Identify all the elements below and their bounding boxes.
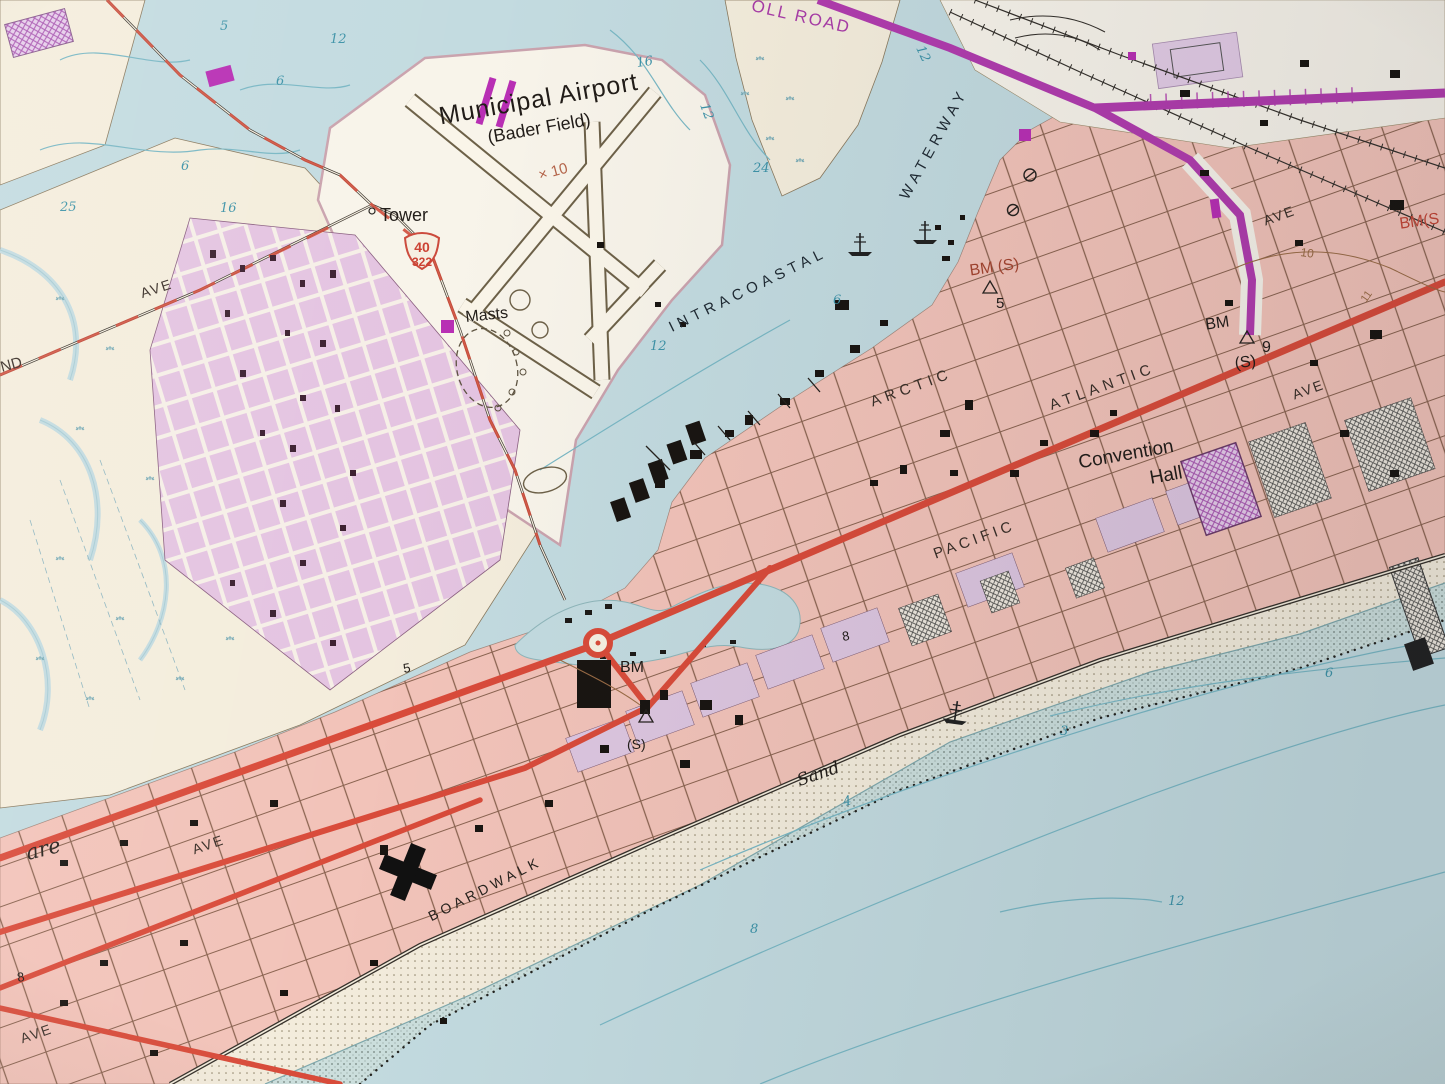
topo-map: Municipal Airport (Bader Field) Tower Ma… bbox=[0, 0, 1445, 1084]
shield-route-40: 40 bbox=[414, 239, 430, 255]
contour-label-10: 10 bbox=[1300, 245, 1315, 261]
depth-12: 12 bbox=[650, 339, 667, 354]
depth-6: 6 bbox=[181, 159, 189, 174]
depth-16: 16 bbox=[220, 201, 237, 216]
depth-12: 12 bbox=[330, 32, 347, 47]
label-bm-atlantic-s: (S) bbox=[1234, 353, 1257, 373]
depth-6: 6 bbox=[276, 74, 284, 89]
label-bm-atlantic: BM bbox=[1204, 313, 1230, 333]
depth-8: 8 bbox=[750, 922, 758, 937]
depth-6: 6 bbox=[1325, 666, 1333, 681]
label-tower: Tower bbox=[380, 205, 428, 225]
depth-12: 12 bbox=[1168, 894, 1185, 909]
label-bm-marina-5: 5 bbox=[996, 295, 1004, 312]
depth-3: 3 bbox=[1060, 724, 1068, 739]
label-bm-circle: BM bbox=[620, 659, 644, 676]
topo-map-photo: Municipal Airport (Bader Field) Tower Ma… bbox=[0, 0, 1445, 1084]
shield-route-322: 322 bbox=[412, 255, 432, 269]
label-bm-atlantic-9: 9 bbox=[1262, 339, 1271, 356]
depth-5: 5 bbox=[220, 19, 228, 34]
depth-25: 25 bbox=[59, 200, 77, 215]
depth-16: 16 bbox=[635, 54, 653, 71]
depth-6: 6 bbox=[833, 293, 841, 308]
label-bm-circle-s: (S) bbox=[627, 736, 646, 752]
depth-24: 24 bbox=[752, 161, 770, 176]
